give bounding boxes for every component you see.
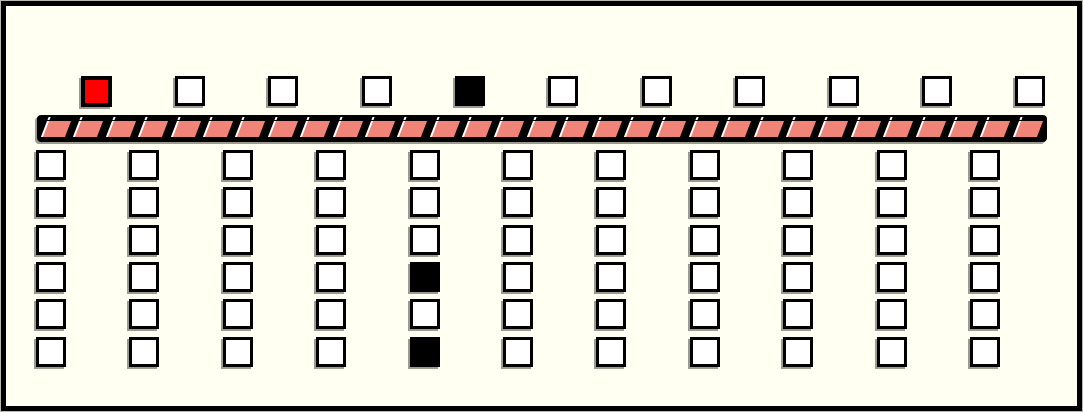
bin-cell-r3-c9[interactable]: [783, 225, 813, 255]
bin-cell-r3-c1[interactable]: [36, 225, 66, 255]
bin-cell-r2-c1[interactable]: [36, 187, 66, 217]
bin-cell-r5-c6[interactable]: [503, 299, 533, 329]
bin-cell-r3-c7[interactable]: [596, 225, 626, 255]
bin-cell-r1-c1[interactable]: [36, 150, 66, 180]
bin-cell-r1-c2[interactable]: [129, 150, 159, 180]
bin-cell-r5-c1[interactable]: [36, 299, 66, 329]
bin-cell-r1-c9[interactable]: [783, 150, 813, 180]
bin-cell-r6-c2[interactable]: [129, 337, 159, 367]
bin-cell-r5-c5[interactable]: [410, 299, 440, 329]
bin-cell-r3-c3[interactable]: [223, 225, 253, 255]
bin-cell-r5-c4[interactable]: [316, 299, 346, 329]
bin-cell-r2-c3[interactable]: [223, 187, 253, 217]
bin-cell-r5-c10[interactable]: [877, 299, 907, 329]
bin-cell-r2-c4[interactable]: [316, 187, 346, 217]
bin-cell-r5-c2[interactable]: [129, 299, 159, 329]
bin-cell-r6-c11[interactable]: [970, 337, 1000, 367]
bin-cell-r4-c7[interactable]: [596, 262, 626, 292]
bin-cell-r1-c7[interactable]: [596, 150, 626, 180]
bin-cell-r6-c6[interactable]: [503, 337, 533, 367]
bin-cell-r5-c11[interactable]: [970, 299, 1000, 329]
bin-cell-r6-c7[interactable]: [596, 337, 626, 367]
machine-panel: [1, 1, 1082, 411]
bin-cell-r6-c8[interactable]: [690, 337, 720, 367]
bin-cell-r6-c1[interactable]: [36, 337, 66, 367]
bin-cell-r4-c1[interactable]: [36, 262, 66, 292]
bin-cell-r2-c2[interactable]: [129, 187, 159, 217]
bin-cell-r6-c10[interactable]: [877, 337, 907, 367]
bin-cell-r4-c5[interactable]: [410, 262, 440, 292]
bin-cell-r6-c3[interactable]: [223, 337, 253, 367]
bin-cell-r2-c11[interactable]: [970, 187, 1000, 217]
bin-cell-r3-c10[interactable]: [877, 225, 907, 255]
bin-cell-r6-c4[interactable]: [316, 337, 346, 367]
bin-cell-r1-c5[interactable]: [410, 150, 440, 180]
bin-cell-r4-c10[interactable]: [877, 262, 907, 292]
bin-cell-r4-c11[interactable]: [970, 262, 1000, 292]
bin-cell-r5-c8[interactable]: [690, 299, 720, 329]
bin-cell-r2-c8[interactable]: [690, 187, 720, 217]
bin-cell-r3-c2[interactable]: [129, 225, 159, 255]
bin-cell-r3-c6[interactable]: [503, 225, 533, 255]
bin-cell-r1-c11[interactable]: [970, 150, 1000, 180]
bin-cell-r2-c7[interactable]: [596, 187, 626, 217]
bin-cell-r1-c10[interactable]: [877, 150, 907, 180]
bin-cell-r1-c3[interactable]: [223, 150, 253, 180]
bin-cell-r5-c7[interactable]: [596, 299, 626, 329]
bin-cell-r2-c6[interactable]: [503, 187, 533, 217]
bin-cell-r4-c4[interactable]: [316, 262, 346, 292]
bin-cell-r3-c5[interactable]: [410, 225, 440, 255]
bin-cell-r4-c2[interactable]: [129, 262, 159, 292]
bin-cell-r3-c4[interactable]: [316, 225, 346, 255]
bin-cell-r3-c8[interactable]: [690, 225, 720, 255]
bin-cell-r3-c11[interactable]: [970, 225, 1000, 255]
bin-cell-r4-c8[interactable]: [690, 262, 720, 292]
bin-cell-r4-c9[interactable]: [783, 262, 813, 292]
bin-cell-r5-c3[interactable]: [223, 299, 253, 329]
bin-grid: [6, 6, 1077, 406]
bin-cell-r6-c5[interactable]: [410, 337, 440, 367]
bin-cell-r4-c6[interactable]: [503, 262, 533, 292]
bin-cell-r2-c9[interactable]: [783, 187, 813, 217]
bin-cell-r2-c10[interactable]: [877, 187, 907, 217]
bin-cell-r5-c9[interactable]: [783, 299, 813, 329]
bin-cell-r1-c8[interactable]: [690, 150, 720, 180]
bin-cell-r1-c4[interactable]: [316, 150, 346, 180]
bin-cell-r2-c5[interactable]: [410, 187, 440, 217]
bin-cell-r6-c9[interactable]: [783, 337, 813, 367]
bin-cell-r4-c3[interactable]: [223, 262, 253, 292]
bin-cell-r1-c6[interactable]: [503, 150, 533, 180]
